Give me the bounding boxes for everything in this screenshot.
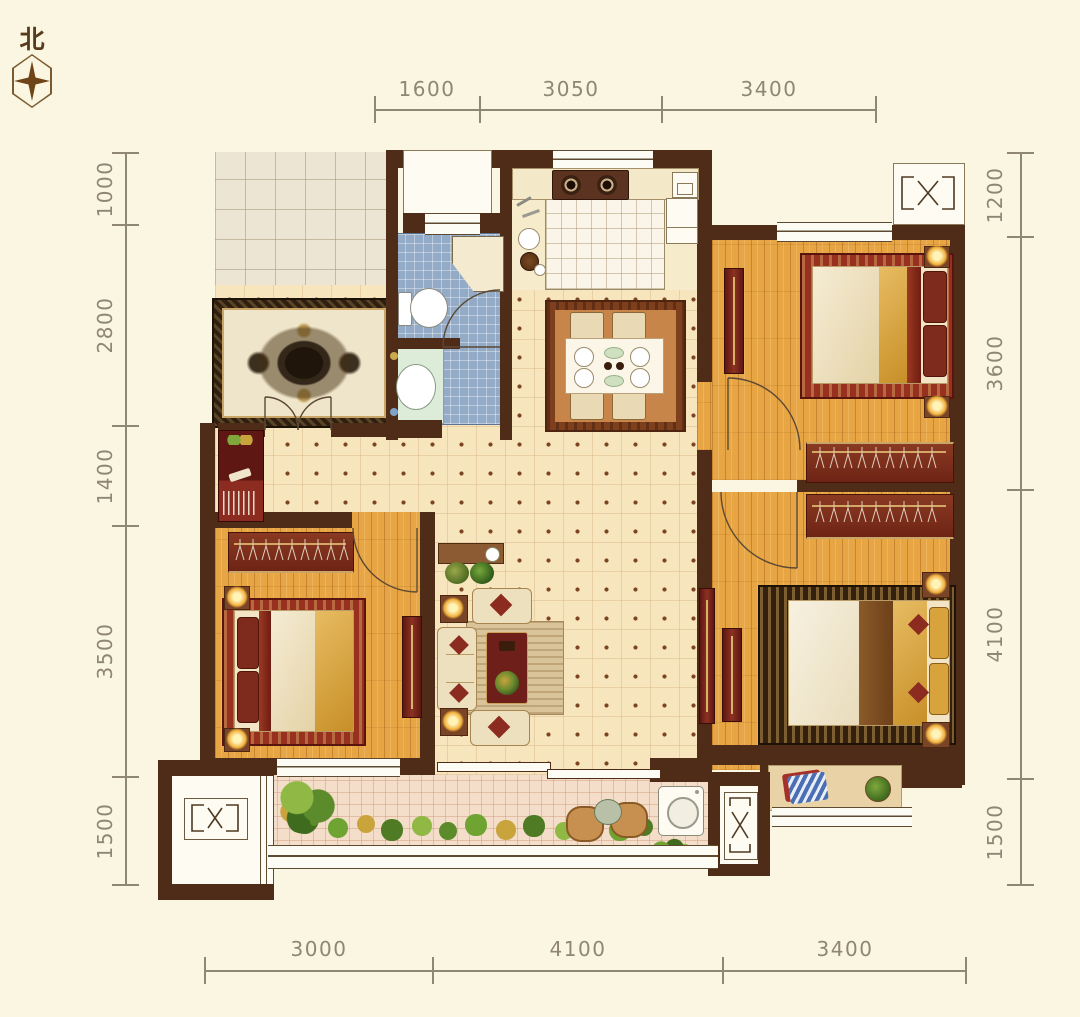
dim-bottom-3: 3400 [805,938,885,960]
master-tv-console [722,628,742,722]
wash-basin [396,364,436,410]
dim-tick-left-4 [112,525,139,527]
bedroom1-lamp-bottom [926,395,948,417]
bedroom2-pillow-2 [237,671,259,723]
living-lamp-bottom [442,710,464,732]
dim-tick-top-2 [479,96,481,123]
armchair-bottom-cushion [488,716,511,739]
bedroom1-pillow-2 [923,325,947,377]
armchair-top-cushion [490,594,513,617]
dining-candle-2 [616,362,624,370]
bedroom1-sheet [813,267,879,383]
dim-left-1: 1000 [94,149,116,229]
entry-rug [212,298,396,428]
dim-right-1: 1200 [984,155,1006,235]
bedroom1-door-opening [697,382,712,450]
dim-top-3: 3400 [729,78,809,100]
wall-under-rug-right [331,423,387,437]
hall-cabinet-item [228,468,251,482]
entry-rug-medallion [237,318,371,407]
bedroom2-tv-glint [411,625,413,709]
dim-line-right [1020,153,1022,885]
wall-left-outer [200,423,215,775]
balcony-sliding-door-panel-1 [437,762,551,772]
dining-dish-bottom [604,375,624,387]
dining-table [565,338,664,394]
compass-north-label: 北 [14,20,50,50]
balcony-table [594,799,622,825]
wall-master-south-corner [900,763,962,788]
wall-shaft-left [403,213,425,233]
dim-top-1: 1600 [387,78,467,100]
dim-left-4: 3500 [94,611,116,691]
bedroom2-lamp-bottom [226,728,248,750]
wall-bedroom1-top-left [712,225,777,240]
kitchen-sink-box [672,172,698,198]
bay-towel [787,771,829,804]
balcony-plant-large [276,778,336,834]
wall-master-south [712,745,965,765]
dim-left-3: 1400 [94,436,116,516]
dim-left-2: 2800 [94,285,116,365]
dim-right-4: 1500 [984,792,1006,872]
bedroom2-lamp-top [226,586,248,608]
balcony-plant-strip [310,818,318,826]
bay-plant [865,776,891,802]
bedroom1-window [777,222,892,242]
dim-tick-right-4 [1007,778,1034,780]
master-lamp-top [925,573,947,595]
bedroom2-sheet [271,611,315,731]
dim-tick-left-1 [112,152,139,154]
dining-plate-3 [574,368,594,388]
dim-tick-left-2 [112,224,139,226]
balcony-sliding-door-panel-2 [547,769,661,779]
dining-chair-3 [570,390,604,420]
hall-cabinet [218,430,264,522]
dim-right-2: 3600 [984,323,1006,403]
living-console-table [438,543,504,564]
dim-tick-left-3 [112,425,139,427]
toilet-bowl [410,288,448,328]
basin-accessory-2 [390,408,398,416]
ac-shaft-crossed-box-icon [724,792,758,860]
dim-line-bottom [205,970,966,972]
master-bed-runner [859,601,893,725]
living-tv-cabinet [699,588,715,724]
master-duvet [789,601,859,725]
bedroom1-quilt [879,267,907,383]
wall-bathroom-inner [390,338,460,349]
fridge [666,198,698,244]
bedroom1-tv-console [724,268,744,374]
dim-tick-right-5 [1007,884,1034,886]
dim-line-top [375,109,876,111]
stove-burner-left [561,175,581,195]
armchair-bottom [470,710,530,746]
dim-tick-bottom-4 [965,957,967,984]
wall-bathroom-south [386,420,442,438]
washing-machine-drum [667,797,699,829]
dim-tick-right-1 [1007,152,1034,154]
ac-enclosure-crossed-box-icon [184,798,248,840]
dim-tick-right-3 [1007,489,1034,491]
sofa-seam-2 [446,682,474,683]
bedroom1-bed [812,266,948,384]
sofa-three-seat [437,627,477,711]
washing-machine-knob [695,790,699,794]
bedroom1-blanket-roll [907,267,921,383]
dim-tick-left-5 [112,776,139,778]
bedroom1-wardrobe [806,442,954,483]
hall-cabinet-shelf [223,491,257,515]
bedroom2-south-window [277,758,400,777]
balcony-railing [268,845,718,869]
dining-plate-2 [630,347,650,367]
compass-hexagon [12,54,52,108]
dim-bottom-2: 4100 [538,938,618,960]
wall-bedroom2-south-right [400,758,435,775]
master-pillow-2 [929,663,949,715]
dim-tick-right-2 [1007,236,1034,238]
washing-machine [658,786,704,836]
living-plant-2 [470,562,494,584]
dining-chair-4 [612,390,646,420]
fridge-door-line [667,227,697,228]
armchair-top [472,588,532,624]
bedroom2-wardrobe [228,532,354,573]
hall-cabinet-decor [225,435,255,445]
coffee-table-tray [499,641,515,651]
dim-bottom-1: 3000 [279,938,359,960]
wall-bedroom2-right [420,512,435,775]
wall-top-b [490,150,553,168]
dim-tick-bottom-1 [204,957,206,984]
dining-plate-4 [630,368,650,388]
living-lamp-top [442,597,464,619]
console-bowl [485,547,500,562]
entry-corridor-floor [215,152,390,300]
bedroom1-pillow-1 [923,271,947,323]
entry-shaft-recess [403,150,492,215]
dining-dish-top [604,347,624,359]
dim-top-2: 3050 [531,78,611,100]
dim-tick-top-4 [875,96,877,123]
dining-candle-1 [604,362,612,370]
wall-bathroom-left [386,150,398,440]
kitchen-window [553,150,653,170]
bedroom2-pillow-1 [237,617,259,669]
living-tv-glint [706,600,708,713]
stove [552,170,629,200]
bay-window-band [772,807,912,827]
stove-burner-right [597,175,617,195]
sofa-cushion-1 [449,635,469,655]
bay-window-ledge [768,765,902,811]
master-tv-glint [731,636,733,713]
master-lamp-bottom [925,723,947,745]
living-plant-1 [445,562,469,584]
master-pillow-1 [929,607,949,659]
bedroom1-lamp-top [926,245,948,267]
master-bed [788,600,950,726]
dim-tick-left-6 [112,884,139,886]
dim-tick-bottom-3 [722,957,724,984]
bedroom1-tv-glint [733,277,735,364]
coffee-table [486,632,528,704]
ac-platform-top-right [893,163,965,225]
sofa-seam-1 [446,654,474,655]
bedroom2-tv-console [402,616,422,718]
master-wardrobe [806,494,954,539]
dim-left-5: 1500 [94,791,116,871]
dim-right-3: 4100 [984,594,1006,674]
dim-tick-top-1 [374,96,376,123]
coffee-table-flowers [495,671,519,695]
bathroom-window [425,213,480,235]
sofa-cushion-2 [449,683,469,703]
dim-tick-bottom-2 [432,957,434,984]
wall-bathroom-kitchen [500,168,512,440]
floor-plan-canvas: 北 [0,0,1080,1017]
kitchen-cup [534,264,546,276]
kitchen-sink-basin [677,183,693,195]
entry-rug-field [222,308,386,418]
bedroom2-blanket-roll [259,611,271,731]
basin-accessory-1 [390,352,398,360]
dim-tick-top-3 [661,96,663,123]
wall-shaft-right [480,213,502,233]
bedroom2-quilt [315,611,353,731]
kitchen-plate [518,228,540,250]
dining-plate-1 [574,347,594,367]
bedroom2-bed [234,610,354,732]
compass-hexagon-inner [14,56,51,107]
kitchen-tile-area [545,196,665,290]
